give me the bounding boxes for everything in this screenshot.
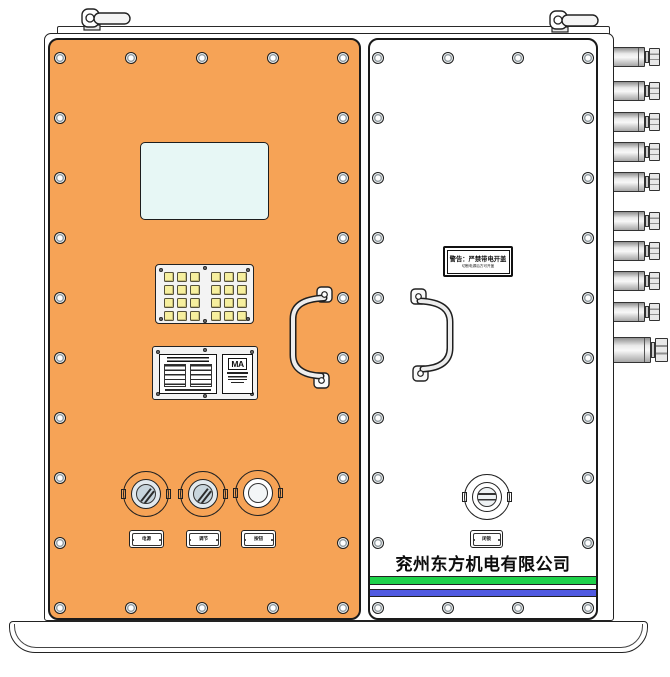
left-door-handle[interactable] bbox=[283, 285, 335, 391]
panel-bolt bbox=[54, 112, 66, 124]
control-label-1: 电源 bbox=[129, 530, 164, 548]
panel-bolt bbox=[512, 602, 524, 614]
panel-bolt bbox=[337, 602, 349, 614]
gland-body bbox=[613, 271, 645, 291]
panel-bolt bbox=[337, 52, 349, 64]
spec-column bbox=[164, 364, 186, 387]
lifting-lug-left-icon bbox=[80, 5, 134, 33]
clamp-mark bbox=[178, 489, 183, 499]
panel-bolt bbox=[337, 232, 349, 244]
panel-bolt bbox=[125, 52, 137, 64]
keypad-screw bbox=[246, 268, 250, 272]
panel-bolt bbox=[54, 292, 66, 304]
ma-text-line bbox=[231, 382, 244, 384]
nameplate-screw bbox=[203, 348, 207, 352]
gland-body bbox=[613, 211, 645, 231]
ma-certification-plate: MA bbox=[222, 354, 253, 394]
panel-bolt bbox=[54, 412, 66, 424]
keypad-key[interactable] bbox=[164, 298, 174, 308]
skid-base bbox=[9, 621, 648, 653]
spec-bottom-line bbox=[165, 389, 211, 391]
gland-nut bbox=[649, 173, 660, 191]
panel-bolt bbox=[372, 232, 384, 244]
panel-bolt bbox=[372, 537, 384, 549]
switch-knob[interactable] bbox=[188, 479, 218, 509]
panel-bolt bbox=[582, 112, 594, 124]
panel-bolt bbox=[372, 172, 384, 184]
gland-body bbox=[613, 302, 645, 322]
panel-bolt bbox=[372, 352, 384, 364]
keypad-key[interactable] bbox=[190, 311, 200, 321]
panel-bolt bbox=[582, 232, 594, 244]
panel-bolt bbox=[512, 52, 524, 64]
keypad-screw bbox=[246, 317, 250, 321]
panel-bolt bbox=[582, 292, 594, 304]
keypad-key[interactable] bbox=[211, 298, 221, 308]
clamp-mark bbox=[462, 492, 467, 502]
gland-nut bbox=[649, 212, 660, 230]
panel-bolt bbox=[372, 292, 384, 304]
lifting-lug-right-icon bbox=[548, 7, 602, 35]
button-center bbox=[248, 483, 268, 503]
keypad-screw bbox=[159, 317, 163, 321]
lock-label: 闭锁 bbox=[470, 530, 503, 548]
switch-slot bbox=[136, 484, 156, 504]
keypad-key[interactable] bbox=[237, 298, 247, 308]
control-label-3: 按钮 bbox=[241, 530, 276, 548]
keypad-key[interactable] bbox=[177, 272, 187, 282]
keypad-key[interactable] bbox=[190, 298, 200, 308]
nameplate-screw bbox=[203, 394, 207, 398]
panel-bolt bbox=[582, 537, 594, 549]
gland-nut bbox=[649, 242, 660, 260]
switch-knob[interactable] bbox=[131, 479, 161, 509]
panel-bolt bbox=[372, 412, 384, 424]
clamp-mark bbox=[121, 489, 126, 499]
panel-bolt bbox=[267, 52, 279, 64]
panel-bolt bbox=[54, 602, 66, 614]
ma-text-line bbox=[227, 372, 248, 374]
company-name: 兖州东方机电有限公司 bbox=[372, 550, 594, 575]
panel-bolt bbox=[337, 412, 349, 424]
keypad-key[interactable] bbox=[237, 285, 247, 295]
gland-body bbox=[613, 47, 645, 67]
keypad-screw bbox=[203, 319, 207, 323]
keypad-key[interactable] bbox=[211, 285, 221, 295]
panel-bolt bbox=[54, 537, 66, 549]
nameplate-group: MA bbox=[152, 346, 258, 400]
clamp-mark bbox=[507, 492, 512, 502]
panel-bolt bbox=[267, 602, 279, 614]
keypad-key[interactable] bbox=[224, 285, 234, 295]
panel-bolt bbox=[372, 602, 384, 614]
keypad-key[interactable] bbox=[224, 272, 234, 282]
panel-bolt bbox=[125, 602, 137, 614]
keypad-screw bbox=[203, 266, 207, 270]
keypad-key[interactable] bbox=[224, 298, 234, 308]
panel-bolt bbox=[337, 472, 349, 484]
keypad-key[interactable] bbox=[211, 311, 221, 321]
keypad-screw bbox=[159, 268, 163, 272]
keypad-key[interactable] bbox=[211, 272, 221, 282]
gland-nut bbox=[649, 143, 660, 161]
button-face[interactable] bbox=[243, 478, 273, 508]
panel-bolt bbox=[582, 472, 594, 484]
panel-bolt bbox=[582, 602, 594, 614]
push-button[interactable] bbox=[235, 470, 281, 516]
lock-knob[interactable] bbox=[472, 482, 502, 512]
right-door-handle[interactable] bbox=[408, 286, 458, 386]
panel-bolt bbox=[372, 472, 384, 484]
panel-bolt bbox=[582, 352, 594, 364]
panel-bolt bbox=[442, 602, 454, 614]
switch-slot bbox=[193, 484, 213, 504]
keypad-key[interactable] bbox=[224, 311, 234, 321]
panel-bolt bbox=[54, 52, 66, 64]
panel-bolt bbox=[54, 352, 66, 364]
keypad-key[interactable] bbox=[190, 285, 200, 295]
gland-nut bbox=[649, 303, 660, 321]
skid-inner-line bbox=[14, 624, 643, 648]
panel-bolt bbox=[337, 352, 349, 364]
panel-bolt bbox=[337, 112, 349, 124]
panel-bolt bbox=[372, 52, 384, 64]
clamp-mark bbox=[233, 488, 238, 498]
clamp-mark bbox=[278, 488, 283, 498]
panel-bolt bbox=[196, 52, 208, 64]
green-stripe bbox=[370, 576, 596, 585]
panel-bolt bbox=[337, 537, 349, 549]
display-screen bbox=[140, 142, 269, 220]
keypad-key[interactable] bbox=[177, 285, 187, 295]
warning-line-1: 警告：严禁带电开盖 bbox=[450, 254, 507, 263]
panel-bolt bbox=[582, 52, 594, 64]
cabinet-drawing: MA 电源 调节 按钮 bbox=[0, 0, 670, 677]
panel-bolt bbox=[337, 292, 349, 304]
gland-body bbox=[613, 172, 645, 192]
spec-title-lines bbox=[167, 357, 209, 362]
spec-column bbox=[190, 364, 212, 387]
lock-slot bbox=[477, 487, 497, 507]
gland-nut bbox=[649, 272, 660, 290]
clamp-mark bbox=[223, 489, 228, 499]
keypad-key[interactable] bbox=[164, 311, 174, 321]
panel-bolt bbox=[372, 112, 384, 124]
panel-bolt bbox=[582, 412, 594, 424]
panel-bolt bbox=[442, 52, 454, 64]
gland-body bbox=[613, 142, 645, 162]
gland-nut bbox=[655, 338, 668, 362]
keypad bbox=[155, 264, 254, 324]
panel-bolt bbox=[337, 172, 349, 184]
keypad-key[interactable] bbox=[177, 311, 187, 321]
keypad-key[interactable] bbox=[190, 272, 200, 282]
keypad-key[interactable] bbox=[164, 272, 174, 282]
keypad-key[interactable] bbox=[237, 272, 247, 282]
panel-bolt bbox=[54, 232, 66, 244]
rotary-switch-1[interactable] bbox=[123, 471, 169, 517]
clamp-mark bbox=[166, 489, 171, 499]
gland-nut bbox=[649, 113, 660, 131]
warning-label: 警告：严禁带电开盖 切断电源后方可开盖 bbox=[443, 246, 513, 277]
gland-nut bbox=[649, 82, 660, 100]
rotary-switch-2[interactable] bbox=[180, 471, 226, 517]
keypad-key[interactable] bbox=[177, 298, 187, 308]
warning-line-2: 切断电源后方可开盖 bbox=[462, 264, 494, 269]
panel-bolt bbox=[196, 602, 208, 614]
control-label-2: 调节 bbox=[186, 530, 221, 548]
gland-body bbox=[613, 112, 645, 132]
keypad-key[interactable] bbox=[164, 285, 174, 295]
gland-body bbox=[613, 81, 645, 101]
ma-mark: MA bbox=[228, 358, 247, 370]
spec-nameplate bbox=[159, 354, 217, 394]
gland-body bbox=[613, 337, 651, 363]
panel-bolt bbox=[54, 172, 66, 184]
blue-stripe bbox=[370, 589, 596, 597]
gland-nut bbox=[649, 48, 660, 66]
panel-bolt bbox=[54, 472, 66, 484]
panel-bolt bbox=[582, 172, 594, 184]
door-lock[interactable] bbox=[464, 474, 510, 520]
ma-text-line bbox=[228, 376, 247, 380]
gland-body bbox=[613, 241, 645, 261]
